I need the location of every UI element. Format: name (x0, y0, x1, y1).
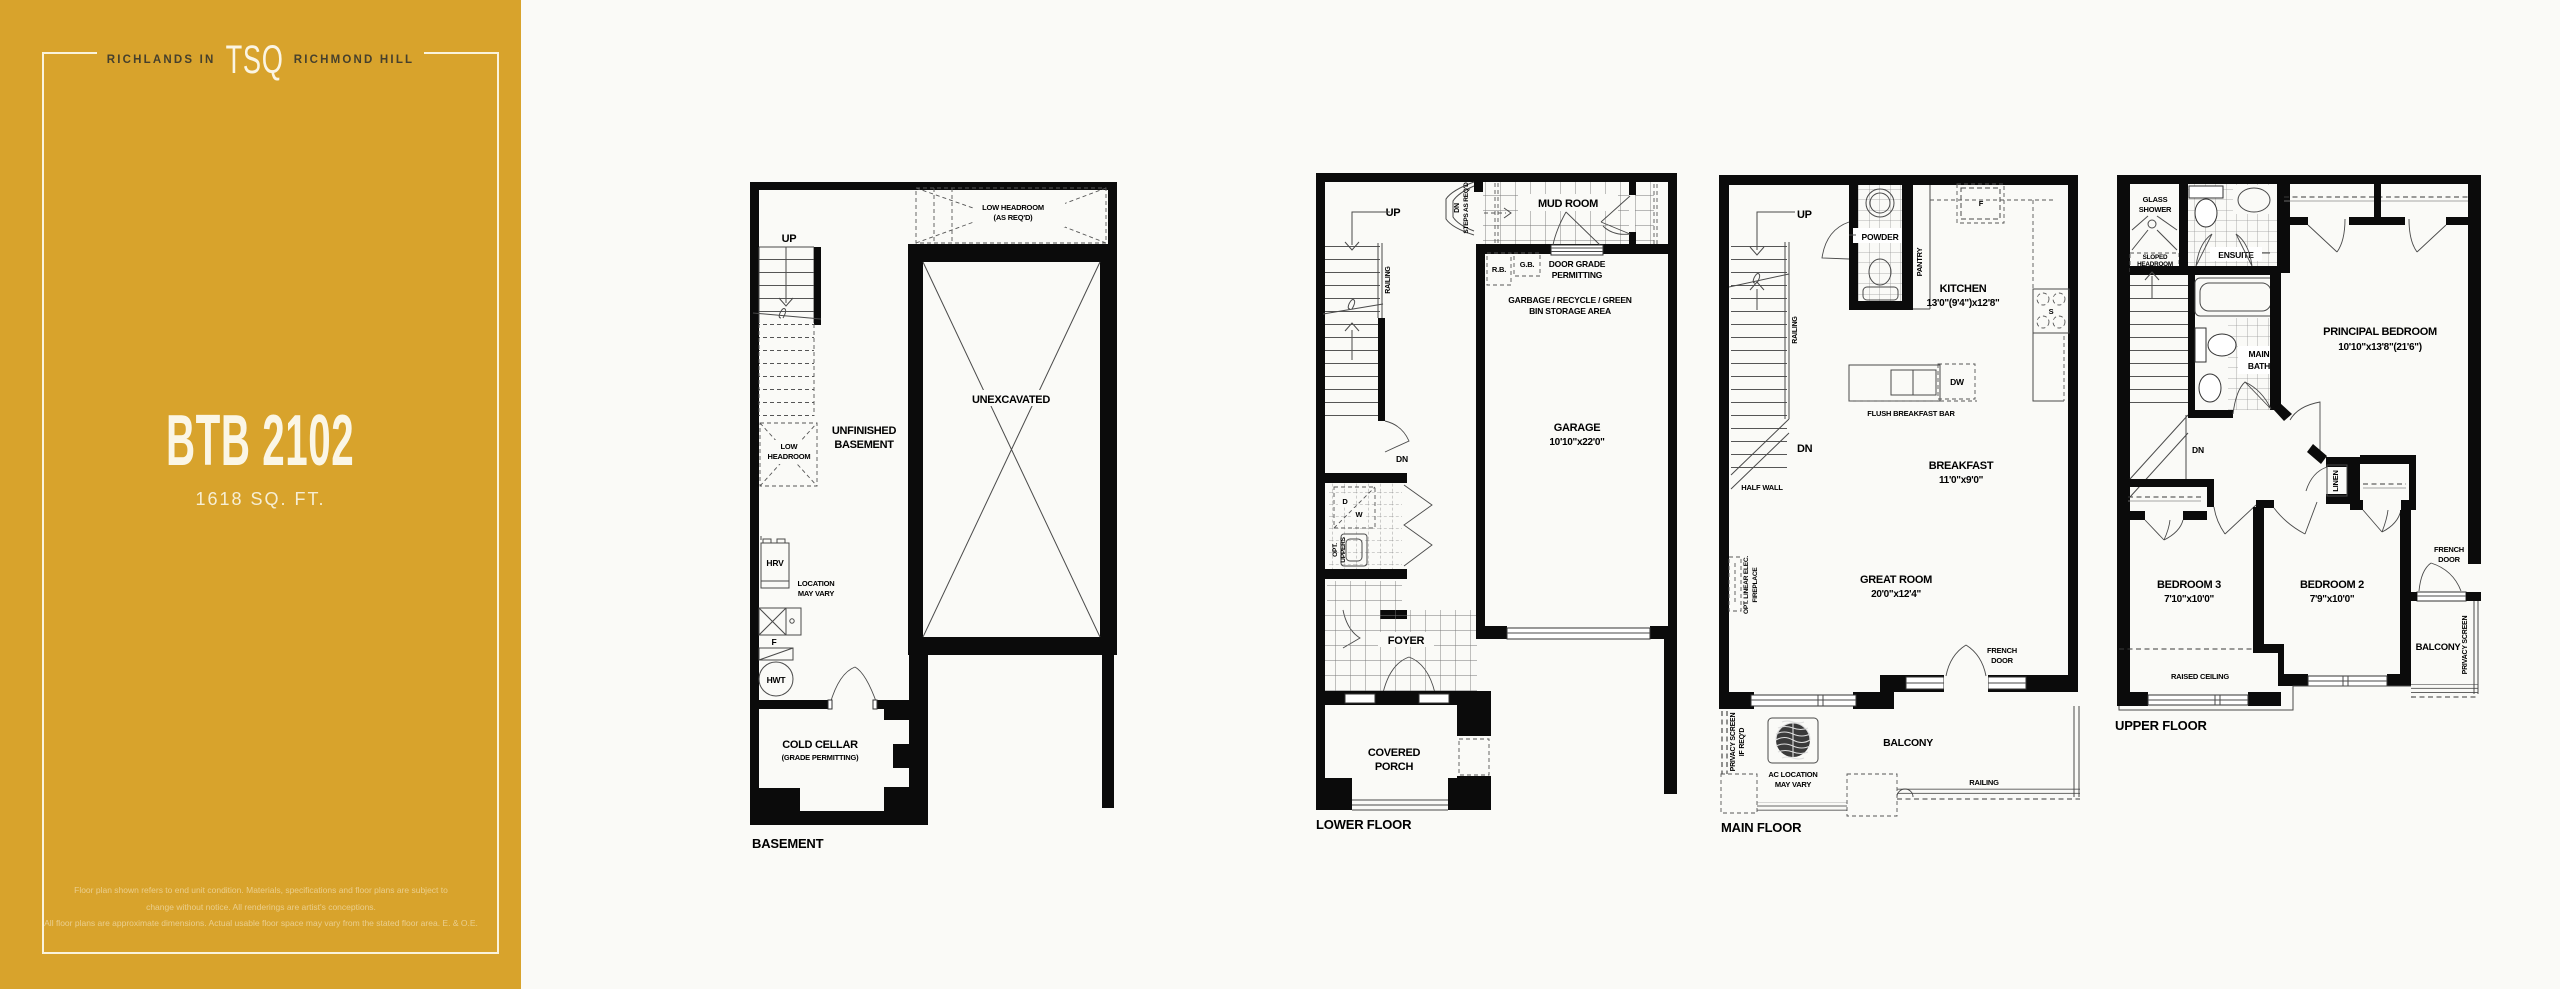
svg-text:GREAT ROOM: GREAT ROOM (1860, 574, 1932, 586)
svg-text:(GRADE PERMITTING): (GRADE PERMITTING) (782, 753, 860, 762)
svg-text:UPPER FLOOR: UPPER FLOOR (2115, 718, 2208, 733)
svg-text:PRIVACY SCREEN: PRIVACY SCREEN (2462, 615, 2469, 674)
svg-text:DW: DW (1950, 377, 1965, 387)
svg-text:UNFINISHED: UNFINISHED (832, 425, 897, 437)
svg-text:(AS REQ'D): (AS REQ'D) (994, 213, 1034, 222)
svg-text:STEPS AS REQ'D: STEPS AS REQ'D (1463, 182, 1470, 234)
svg-text:PERMITTING: PERMITTING (1552, 270, 1603, 280)
svg-text:BEDROOM 3: BEDROOM 3 (2157, 579, 2221, 591)
svg-text:UNEXCAVATED: UNEXCAVATED (972, 394, 1050, 406)
svg-text:HALF WALL: HALF WALL (1741, 483, 1783, 492)
svg-text:DN: DN (1797, 443, 1813, 455)
svg-text:SLOPED: SLOPED (2143, 254, 2168, 261)
svg-text:F: F (772, 637, 777, 647)
svg-text:7'10"x10'0": 7'10"x10'0" (2164, 594, 2214, 605)
svg-text:BASEMENT: BASEMENT (752, 836, 824, 851)
svg-text:LOW: LOW (781, 442, 799, 451)
svg-text:LINEN: LINEN (2331, 470, 2340, 492)
svg-text:HEADROOM: HEADROOM (768, 452, 811, 461)
svg-text:RAISED CEILING: RAISED CEILING (2171, 672, 2229, 681)
svg-text:PORCH: PORCH (1375, 761, 1414, 773)
svg-text:RAILING: RAILING (1969, 778, 1999, 787)
svg-text:OPT.: OPT. (1332, 543, 1339, 557)
svg-text:PANTRY: PANTRY (1915, 247, 1924, 276)
svg-text:BREAKFAST: BREAKFAST (1929, 460, 1994, 472)
svg-text:13'0"(9'4")x12'8": 13'0"(9'4")x12'8" (1927, 298, 2001, 309)
svg-text:7'9"x10'0": 7'9"x10'0" (2310, 594, 2355, 605)
svg-text:BATH: BATH (2248, 361, 2270, 371)
svg-text:S: S (2049, 307, 2054, 316)
svg-text:HWT: HWT (767, 675, 787, 685)
svg-text:IF REQ'D: IF REQ'D (1739, 728, 1746, 757)
svg-text:LOW HEADROOM: LOW HEADROOM (982, 203, 1044, 212)
svg-text:MAY VARY: MAY VARY (1775, 780, 1812, 789)
svg-text:BASEMENT: BASEMENT (834, 439, 894, 451)
svg-text:GARBAGE / RECYCLE / GREEN: GARBAGE / RECYCLE / GREEN (1508, 295, 1632, 305)
svg-text:FOYER: FOYER (1388, 635, 1425, 647)
svg-text:DOOR: DOOR (1991, 656, 2013, 665)
svg-text:UP: UP (782, 233, 797, 245)
svg-text:RAILING: RAILING (1792, 316, 1799, 344)
svg-text:10'10"x22'0": 10'10"x22'0" (1549, 437, 1605, 448)
svg-text:R.B.: R.B. (1492, 265, 1506, 274)
svg-text:MAIN: MAIN (2249, 349, 2270, 359)
svg-text:GARAGE: GARAGE (1554, 422, 1600, 434)
svg-text:UP: UP (1797, 209, 1812, 221)
svg-text:G.B.: G.B. (1520, 260, 1535, 269)
svg-text:SHOWER: SHOWER (2139, 205, 2172, 214)
svg-text:OPT. LINEAR ELEC.: OPT. LINEAR ELEC. (1743, 556, 1750, 614)
svg-text:W: W (1356, 510, 1364, 519)
svg-text:BALCONY: BALCONY (1883, 737, 1933, 749)
svg-text:KITCHEN: KITCHEN (1940, 283, 1987, 295)
svg-text:D: D (1342, 497, 1348, 506)
svg-text:BALCONY: BALCONY (2416, 642, 2462, 653)
svg-text:FIREPLACE: FIREPLACE (1752, 567, 1759, 603)
svg-text:PRINCIPAL BEDROOM: PRINCIPAL BEDROOM (2323, 326, 2437, 338)
svg-text:DOOR: DOOR (2438, 555, 2460, 564)
svg-text:RAILING: RAILING (1385, 266, 1392, 294)
svg-text:POWDER: POWDER (1861, 232, 1898, 242)
svg-text:BEDROOM 2: BEDROOM 2 (2300, 579, 2364, 591)
svg-text:FRENCH: FRENCH (2434, 545, 2464, 554)
svg-text:FLUSH BREAKFAST BAR: FLUSH BREAKFAST BAR (1867, 409, 1955, 418)
svg-text:AC LOCATION: AC LOCATION (1768, 770, 1817, 779)
svg-text:HRV: HRV (766, 558, 784, 568)
svg-text:MAY VARY: MAY VARY (798, 589, 835, 598)
svg-text:BIN STORAGE AREA: BIN STORAGE AREA (1529, 306, 1611, 316)
svg-text:F: F (1979, 199, 1984, 208)
svg-text:DN: DN (2192, 445, 2204, 455)
svg-text:DOOR GRADE: DOOR GRADE (1549, 259, 1606, 269)
svg-text:20'0"x12'4": 20'0"x12'4" (1871, 589, 1921, 600)
svg-text:PRIVACY SCREEN: PRIVACY SCREEN (1730, 712, 1737, 771)
svg-text:11'0"x9'0": 11'0"x9'0" (1939, 475, 1984, 486)
svg-text:LOCATION: LOCATION (797, 579, 834, 588)
svg-text:10'10"x13'8"(21'6"): 10'10"x13'8"(21'6") (2338, 342, 2422, 353)
svg-text:LOWER FLOOR: LOWER FLOOR (1316, 817, 1412, 832)
svg-text:FRENCH: FRENCH (1987, 646, 2017, 655)
svg-text:COVERED: COVERED (1368, 747, 1421, 759)
svg-text:MUD ROOM: MUD ROOM (1538, 198, 1598, 210)
svg-text:DN: DN (1396, 454, 1408, 464)
svg-text:COLD CELLAR: COLD CELLAR (782, 739, 858, 751)
svg-text:UP: UP (1386, 207, 1401, 219)
svg-text:UPPERS: UPPERS (1340, 536, 1347, 562)
svg-text:GLASS: GLASS (2143, 195, 2168, 204)
svg-text:MAIN FLOOR: MAIN FLOOR (1721, 820, 1802, 835)
svg-text:DN: DN (1454, 203, 1461, 213)
